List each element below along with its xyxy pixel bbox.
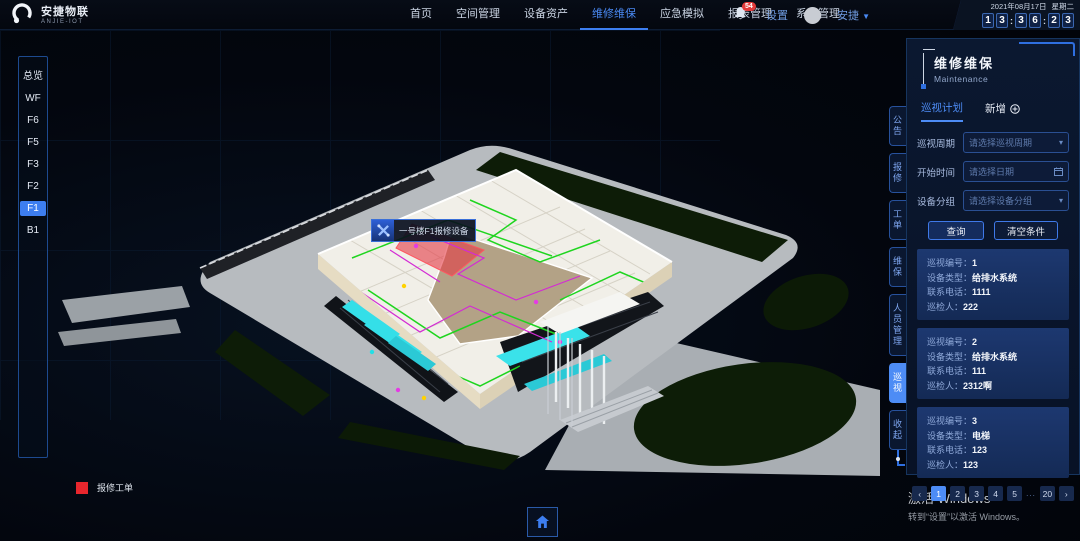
inspector-label: 巡检人： (927, 302, 963, 312)
inspector-value: 123 (963, 460, 978, 470)
nav-item-assets[interactable]: 设备资产 (512, 0, 580, 30)
datetime-widget: 2021年08月17日 星期二 1 3 : 3 6 : 2 3 (962, 0, 1080, 30)
page-button-20[interactable]: 20 (1040, 486, 1055, 501)
app-root: 一号楼F1报修设备 安捷物联 ANJIE-IOT 首页 空间管理 设备资产 维修… (0, 0, 1080, 541)
pagination: ‹ 1 2 3 4 5 ... 20 › (917, 486, 1069, 501)
clear-filters-button[interactable]: 清空条件 (994, 221, 1058, 240)
page-prev-button[interactable]: ‹ (912, 486, 927, 501)
clock-digit: 6 (1029, 13, 1041, 28)
floor-item-f5[interactable]: F5 (20, 135, 46, 150)
clock-display: 1 3 : 3 6 : 2 3 (971, 13, 1074, 28)
page-button-3[interactable]: 3 (969, 486, 984, 501)
patrol-cycle-label: 巡视周期 (917, 136, 963, 150)
tab-add-new[interactable]: 新增 (985, 101, 1020, 121)
collapse-indicator-dot (896, 457, 900, 461)
tab-patrol-plan[interactable]: 巡视计划 (921, 100, 963, 122)
plus-circle-icon (1010, 104, 1020, 114)
side-tab-patrol[interactable]: 巡视 (889, 363, 906, 403)
panel-title: 维修维保 (934, 53, 1069, 72)
clock-digit: 1 (982, 13, 994, 28)
brand-name: 安捷物联 (41, 3, 89, 19)
patrol-id-label: 巡视编号： (927, 258, 972, 268)
device-type-label: 设备类型： (927, 431, 972, 441)
page-button-4[interactable]: 4 (988, 486, 1003, 501)
page-ellipsis: ... (1026, 489, 1036, 498)
patrol-id-label: 巡视编号： (927, 337, 972, 347)
patrol-card[interactable]: 巡视编号：3 设备类型：电梯 联系电话：123 巡检人：123 (917, 407, 1069, 478)
device-type-value: 给排水系统 (972, 352, 1017, 362)
patrol-card[interactable]: 巡视编号：1 设备类型：给排水系统 联系电话：1111 巡检人：222 (917, 249, 1069, 320)
device-group-label: 设备分组 (917, 194, 963, 208)
map-legend: 报修工单 (76, 481, 133, 494)
clock-digit: 3 (1015, 13, 1027, 28)
device-group-select[interactable]: 请选择设备分组 ▾ (963, 190, 1069, 211)
floor-item-overview[interactable]: 总览 (20, 65, 46, 84)
phone-value: 1111 (972, 287, 991, 297)
device-type-label: 设备类型： (927, 273, 972, 283)
clock-digit: 3 (996, 13, 1008, 28)
clock-digit: 2 (1048, 13, 1060, 28)
nav-item-space[interactable]: 空间管理 (444, 0, 512, 30)
floor-item-f2[interactable]: F2 (20, 179, 46, 194)
device-type-value: 给排水系统 (972, 273, 1017, 283)
device-group-placeholder: 请选择设备分组 (969, 194, 1059, 207)
side-tab-upkeep[interactable]: 维保 (889, 247, 906, 287)
phone-value: 111 (972, 366, 986, 376)
brand-subname: ANJIE-IOT (41, 19, 89, 25)
tab-add-new-label: 新增 (985, 101, 1006, 116)
clock-colon: : (1010, 16, 1013, 26)
floor-item-b1[interactable]: B1 (20, 223, 46, 238)
device-type-label: 设备类型： (927, 352, 972, 362)
navbar-right-cluster: 54 设置 安捷 ▼ (734, 0, 870, 30)
patrol-id-value: 1 (972, 258, 977, 268)
calendar-icon (1054, 167, 1063, 176)
page-button-5[interactable]: 5 (1007, 486, 1022, 501)
panel-tabs: 巡视计划 新增 (921, 100, 1069, 122)
date-label: 2021年08月17日 (991, 1, 1047, 12)
panel-header: 维修维保 Maintenance (923, 53, 1069, 84)
patrol-cycle-select[interactable]: 请选择巡视周期 ▾ (963, 132, 1069, 153)
inspector-label: 巡检人： (927, 381, 963, 391)
phone-value: 123 (972, 445, 987, 455)
nav-item-emergency[interactable]: 应急模拟 (648, 0, 716, 30)
clock-colon: : (1043, 16, 1046, 26)
patrol-card-list: 巡视编号：1 设备类型：给排水系统 联系电话：1111 巡检人：222 巡视编号… (917, 249, 1069, 478)
reset-view-home-button[interactable] (527, 507, 558, 537)
inspector-value: 222 (963, 302, 978, 312)
side-tab-workorder[interactable]: 工单 (889, 200, 906, 240)
floor-item-f6[interactable]: F6 (20, 113, 46, 128)
start-date-picker[interactable]: 请选择日期 (963, 161, 1069, 182)
nav-item-home[interactable]: 首页 (398, 0, 444, 30)
start-date-placeholder: 请选择日期 (969, 165, 1054, 178)
page-button-1[interactable]: 1 (931, 486, 946, 501)
legend-label-repair: 报修工单 (97, 481, 133, 494)
panel-subtitle: Maintenance (934, 74, 1069, 84)
top-navbar: 安捷物联 ANJIE-IOT 首页 空间管理 设备资产 维修维保 应急模拟 报表… (0, 0, 1080, 30)
floor-item-f3[interactable]: F3 (20, 157, 46, 172)
side-tab-repair[interactable]: 报修 (889, 153, 906, 193)
brand-logo-icon (10, 2, 34, 26)
legend-color-repair (76, 482, 88, 494)
model-tooltip[interactable]: 一号楼F1报修设备 (371, 219, 476, 242)
patrol-id-value: 3 (972, 416, 977, 426)
panel-category-tabs: 公告 报修 工单 维保 人员管理 巡视 收起 (889, 106, 906, 461)
user-menu[interactable]: 安捷 ▼ (837, 7, 870, 23)
caret-down-icon: ▼ (862, 12, 870, 21)
patrol-card[interactable]: 巡视编号：2 设备类型：给排水系统 联系电话：111 巡检人：2312啊 (917, 328, 1069, 399)
notification-badge: 54 (742, 2, 756, 11)
phone-label: 联系电话： (927, 366, 972, 376)
device-type-value: 电梯 (972, 431, 990, 441)
patrol-cycle-placeholder: 请选择巡视周期 (969, 136, 1059, 149)
side-tab-collapse[interactable]: 收起 (889, 410, 906, 450)
side-tab-announcements[interactable]: 公告 (889, 106, 906, 146)
start-time-label: 开始时间 (917, 165, 963, 179)
notifications-button[interactable]: 54 (734, 6, 750, 24)
chevron-down-icon: ▾ (1059, 196, 1063, 205)
settings-link[interactable]: 设置 (766, 7, 788, 23)
patrol-filter-form: 巡视周期 请选择巡视周期 ▾ 开始时间 请选择日期 (917, 132, 1069, 240)
inspector-label: 巡检人： (927, 460, 963, 470)
floor-item-f1[interactable]: F1 (20, 201, 46, 216)
phone-label: 联系电话： (927, 445, 972, 455)
floor-selector: 总览 WF F6 F5 F3 F2 F1 B1 (18, 56, 48, 458)
patrol-id-value: 2 (972, 337, 977, 347)
side-tab-personnel[interactable]: 人员管理 (889, 294, 906, 356)
clock-digit: 3 (1062, 13, 1074, 28)
phone-label: 联系电话： (927, 287, 972, 297)
brand-logo[interactable]: 安捷物联 ANJIE-IOT (10, 2, 89, 26)
page-next-button[interactable]: › (1059, 486, 1074, 501)
user-avatar[interactable] (804, 7, 821, 24)
page-button-2[interactable]: 2 (950, 486, 965, 501)
inspector-value: 2312啊 (963, 381, 992, 391)
weekday-label: 星期二 (1052, 1, 1075, 12)
home-icon (535, 515, 550, 529)
floor-item-wf[interactable]: WF (20, 91, 46, 106)
user-name-label: 安捷 (837, 10, 859, 22)
windows-activation-subtitle: 转到“设置”以激活 Windows。 (908, 510, 1025, 523)
patrol-id-label: 巡视编号： (927, 416, 972, 426)
device-node-icon (372, 220, 394, 241)
chevron-down-icon: ▾ (1059, 138, 1063, 147)
query-button[interactable]: 查询 (928, 221, 984, 240)
nav-item-maintenance[interactable]: 维修维保 (580, 0, 648, 30)
maintenance-panel: 维修维保 Maintenance 巡视计划 新增 巡视周期 请选择巡视周期 ▾ (906, 38, 1080, 475)
model-tooltip-label: 一号楼F1报修设备 (399, 225, 468, 237)
